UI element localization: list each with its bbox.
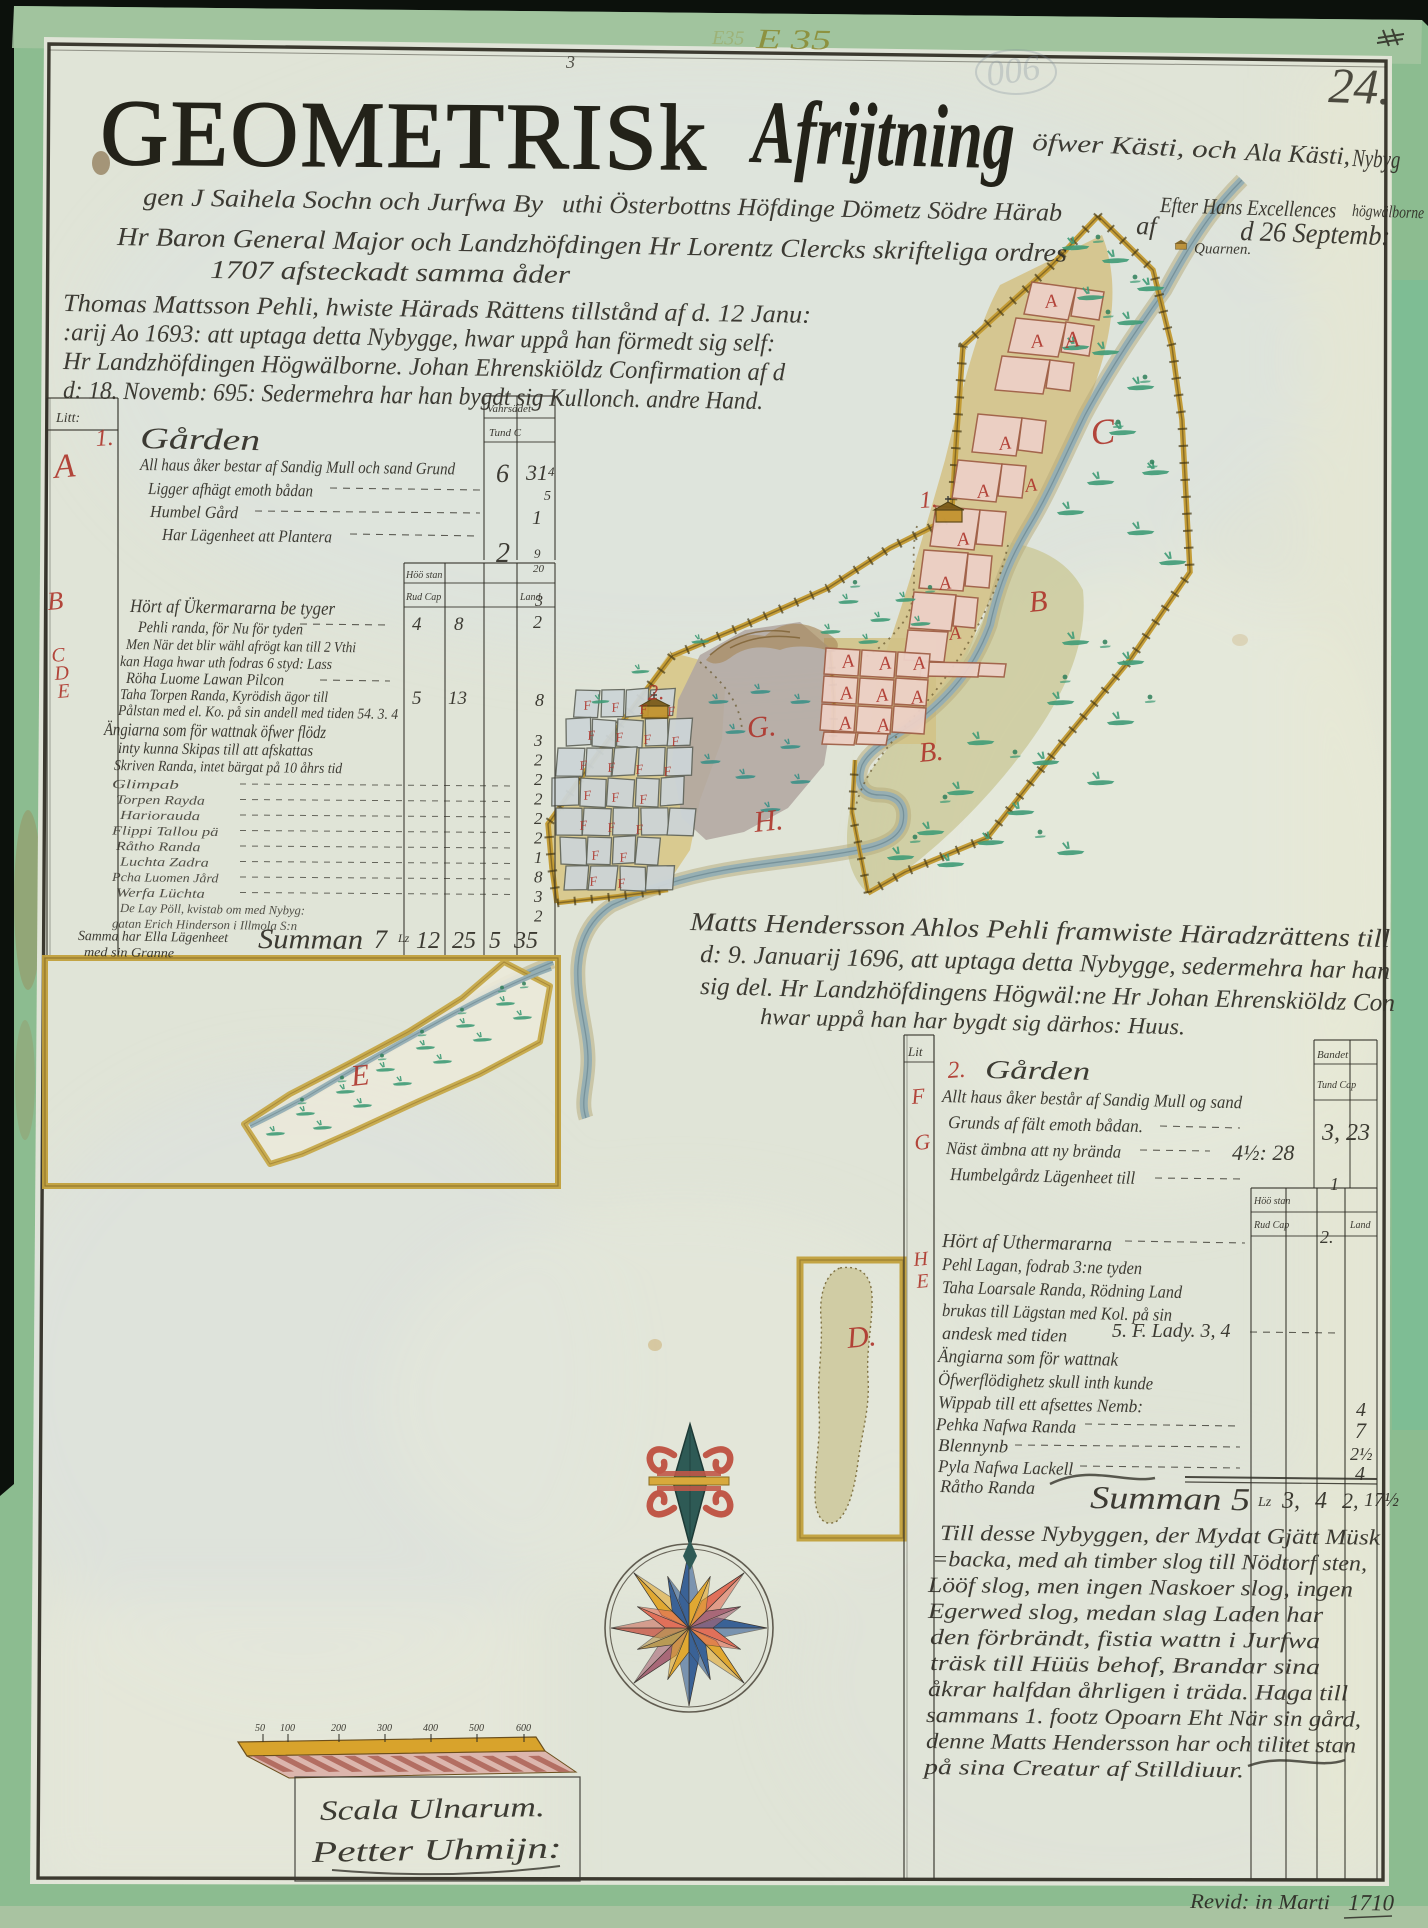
svg-text:Hört af Ükermararna be tyger: Hört af Ükermararna be tyger [129, 596, 336, 620]
svg-text:Pcha Luomen Jård: Pcha Luomen Jård [111, 870, 220, 886]
svg-text:24.: 24. [1328, 57, 1392, 115]
svg-text:GEOMETRISk: GEOMETRISk [100, 81, 709, 190]
svg-text:Grunds af fält emoth bådan.: Grunds af fält emoth bådan. [948, 1112, 1143, 1136]
svg-text:400: 400 [423, 1723, 438, 1734]
svg-text:G: G [913, 1129, 931, 1155]
svg-text:Humbel Gård: Humbel Gård [149, 502, 239, 522]
svg-text:3: 3 [534, 593, 543, 610]
svg-text:Land: Land [1349, 1220, 1372, 1231]
svg-text:Lz: Lz [397, 931, 410, 945]
svg-text:Näst ämbna att ny brända: Näst ämbna att ny brända [945, 1138, 1121, 1162]
svg-text:8: 8 [534, 868, 543, 887]
svg-text:De Lay Pöll, kvistab om med Ny: De Lay Pöll, kvistab om med Nybyg: [119, 901, 305, 918]
svg-text:1707 afsteckadt samma åder: 1707 afsteckadt samma åder [210, 255, 571, 289]
svg-text:Litt:: Litt: [55, 411, 80, 426]
svg-text:13: 13 [448, 688, 467, 709]
svg-text:sammans 1. footz Opoarn Eht: sammans 1. footz Opoarn Eht När sin gård… [926, 1702, 1361, 1732]
svg-text:F: F [909, 1083, 926, 1109]
svg-text:Petter Uhmijn:: Petter Uhmijn: [310, 1832, 562, 1869]
svg-text:Vahrsädet: Vahrsädet [487, 403, 532, 415]
svg-text:E35: E35 [711, 27, 745, 50]
svg-text:Höö stan: Höö stan [405, 570, 442, 581]
svg-text:åkrar halfdan åhrligen i tr: åkrar halfdan åhrligen i träda. Haga til… [928, 1676, 1348, 1705]
svg-text:A: A [50, 447, 76, 486]
svg-text:Glimpab: Glimpab [112, 777, 179, 792]
svg-text:300: 300 [376, 1723, 392, 1734]
svg-text:inty kunna Skipas till att afs: inty kunna Skipas till att afskattas [118, 740, 313, 760]
svg-text:Höö stan: Höö stan [1253, 1196, 1290, 1207]
svg-text:2: 2 [534, 751, 543, 770]
svg-text:högwälborne: högwälborne [1352, 201, 1425, 222]
svg-text:B: B [46, 586, 64, 616]
svg-text:2½: 2½ [1350, 1444, 1373, 1464]
svg-text:2: 2 [534, 790, 543, 809]
svg-text:Luchta Zadra: Luchta Zadra [119, 854, 209, 869]
svg-text:E: E [348, 1058, 371, 1093]
svg-text:på sina Creatur af Stilldiu: på sina Creatur af Stilldiuur. [921, 1754, 1244, 1782]
svg-text:E 35: E 35 [754, 24, 831, 56]
svg-text:5: 5 [412, 688, 422, 709]
svg-text:Torpen Rayda: Torpen Rayda [116, 793, 205, 808]
svg-text:4½: 28: 4½: 28 [1232, 1140, 1294, 1165]
svg-text:5. F. Lady. 3, 4: 5. F. Lady. 3, 4 [1112, 1320, 1231, 1342]
svg-text:3: 3 [533, 887, 543, 906]
svg-text:Råtho Randa: Råtho Randa [939, 1476, 1035, 1498]
svg-text:Afrijtning: Afrijtning [748, 83, 1016, 188]
svg-text:G.: G. [745, 709, 777, 745]
svg-text:8: 8 [454, 614, 464, 635]
svg-text:Gården: Gården [985, 1055, 1090, 1086]
svg-text:2,: 2, [1342, 1488, 1359, 1513]
svg-text:600: 600 [516, 1723, 531, 1734]
svg-text:Bandet: Bandet [1317, 1049, 1349, 1061]
svg-text:1.: 1. [919, 487, 939, 514]
svg-text:4: 4 [412, 614, 422, 635]
svg-text:Tund Cap: Tund Cap [1317, 1080, 1356, 1091]
svg-text:Hariorauda: Hariorauda [119, 808, 201, 823]
svg-text:8: 8 [535, 690, 544, 710]
svg-text:3,: 3, [1281, 1488, 1300, 1514]
svg-text:Hört af Uthermararna: Hört af Uthermararna [941, 1230, 1112, 1256]
svg-text:Scala Ulnarum.: Scala Ulnarum. [320, 1792, 546, 1827]
svg-text:=backa, med ah timber slog: =backa, med ah timber slog till Nödtorf … [932, 1546, 1367, 1576]
svg-text:2: 2 [533, 612, 542, 632]
svg-text:Ängiarna som för wattnak öfwer: Ängiarna som för wattnak öfwer flödz [103, 719, 326, 742]
svg-text:1: 1 [1330, 1174, 1339, 1194]
svg-text:2: 2 [534, 907, 543, 926]
svg-text:5: 5 [489, 928, 501, 954]
svg-text:Lit: Lit [907, 1044, 923, 1059]
svg-text:1710: 1710 [1348, 1890, 1395, 1915]
svg-text:Pehka Nafwa Randa: Pehka Nafwa Randa [935, 1414, 1076, 1437]
svg-text:3: 3 [533, 731, 543, 750]
svg-text:denne Matts Hendersson har o: denne Matts Hendersson har och tilitet s… [926, 1728, 1356, 1758]
svg-text:9: 9 [534, 546, 541, 561]
svg-text:2.: 2. [1320, 1227, 1334, 1247]
svg-text:D.: D. [844, 1319, 877, 1355]
svg-text:1: 1 [532, 507, 542, 529]
svg-text:Summan: Summan [258, 924, 363, 956]
svg-text:1: 1 [534, 848, 543, 867]
svg-text:7: 7 [374, 925, 388, 954]
svg-text:Flippi Tallou pä: Flippi Tallou pä [111, 823, 219, 839]
svg-text:2: 2 [534, 829, 543, 848]
svg-text:Men När det blir wähl afrögt k: Men När det blir wähl afrögt kan till 2 … [125, 637, 356, 656]
svg-text:Rud Cap: Rud Cap [405, 592, 441, 603]
svg-text:Röha Luome Lawan Pilcon: Röha Luome Lawan Pilcon [125, 670, 284, 689]
svg-text:4: 4 [1355, 1463, 1365, 1485]
svg-text:träsk till Hüüs behof, Bra: träsk till Hüüs behof, Brandar sina [930, 1650, 1320, 1679]
svg-text:200: 200 [331, 1723, 346, 1734]
svg-text:Ala Kästi,: Ala Kästi, [1243, 139, 1351, 170]
svg-text:2: 2 [534, 809, 543, 828]
svg-text:20: 20 [533, 563, 545, 575]
svg-text:Pehl Lagan, fodrab 3:ne tyden: Pehl Lagan, fodrab 3:ne tyden [941, 1254, 1142, 1278]
svg-text:100: 100 [280, 1723, 295, 1734]
svg-text:Rud Cap: Rud Cap [1253, 1220, 1289, 1231]
svg-text:med sin Granne: med sin Granne [84, 944, 174, 960]
svg-text:andesk med tiden: andesk med tiden [942, 1323, 1067, 1346]
svg-text:Blennynb: Blennynb [938, 1435, 1008, 1456]
svg-text:Egerwed slog, medan slag La: Egerwed slog, medan slag Laden har [927, 1598, 1324, 1627]
svg-text:35: 35 [513, 928, 538, 954]
svg-text:25: 25 [452, 928, 476, 954]
svg-text:d 26 Septemb:: d 26 Septemb: [1240, 216, 1391, 252]
svg-text:den förbrändt, fistia wattn: den förbrändt, fistia wattn i Jurfwa [930, 1624, 1320, 1653]
svg-text:Skriven Randa, intet bärgat på: Skriven Randa, intet bärgat på 10 åhrs t… [114, 758, 343, 777]
svg-text:E: E [56, 680, 71, 703]
svg-text:2: 2 [496, 538, 510, 569]
svg-text:H.: H. [751, 803, 784, 839]
svg-text:E: E [915, 1270, 930, 1293]
svg-text:1.: 1. [95, 425, 115, 452]
svg-text:Gården: Gården [140, 422, 261, 457]
svg-text:Lz: Lz [1257, 1495, 1272, 1510]
svg-text:31: 31 [525, 460, 548, 485]
svg-text:2.: 2. [647, 679, 665, 705]
svg-text:Revid: in Marti: Revid: in Marti [1189, 1889, 1330, 1914]
svg-text:2: 2 [534, 770, 543, 789]
svg-text:2.: 2. [947, 1057, 967, 1084]
svg-text:3, 23: 3, 23 [1321, 1120, 1370, 1146]
svg-text:12: 12 [416, 928, 440, 954]
svg-text:6: 6 [496, 459, 509, 488]
svg-text:Nybyg: Nybyg [1351, 145, 1401, 174]
svg-text:B: B [1027, 584, 1049, 619]
svg-text:Werfa Lüchta: Werfa Lüchta [116, 886, 205, 901]
svg-text:Ligger afhägt emoth bådan: Ligger afhägt emoth bådan [147, 479, 313, 500]
svg-text:Till desse Nybyggen, der Myd: Till desse Nybyggen, der Mydat Gjätt Müs… [940, 1520, 1382, 1550]
svg-text:Summan 5: Summan 5 [1090, 1479, 1250, 1517]
svg-text:Lööf slog, men ingen Naskoe: Lööf slog, men ingen Naskoer slog, ingen [927, 1572, 1353, 1601]
svg-text:3: 3 [565, 52, 575, 72]
svg-text:4: 4 [548, 464, 555, 479]
svg-text:7: 7 [1355, 1418, 1367, 1443]
svg-text:500: 500 [469, 1723, 484, 1734]
svg-text:Ängiarna som för wattnak: Ängiarna som för wattnak [936, 1346, 1119, 1371]
svg-text:5: 5 [544, 489, 551, 504]
svg-text:Pehli randa, för Nu för tyden: Pehli randa, för Nu för tyden [137, 619, 303, 638]
svg-text:Har Lägenheet att Plantera: Har Lägenheet att Plantera [161, 525, 332, 546]
svg-text:Tund C: Tund C [489, 427, 522, 439]
svg-text:4: 4 [1315, 1488, 1327, 1514]
svg-text:Humbelgårdz Lägenheet till: Humbelgårdz Lägenheet till [949, 1164, 1135, 1188]
svg-text:Råtho Randa: Råtho Randa [115, 839, 201, 854]
svg-text:50: 50 [255, 1723, 265, 1734]
svg-text:B.: B. [917, 736, 944, 769]
svg-text:17½: 17½ [1364, 1489, 1399, 1511]
